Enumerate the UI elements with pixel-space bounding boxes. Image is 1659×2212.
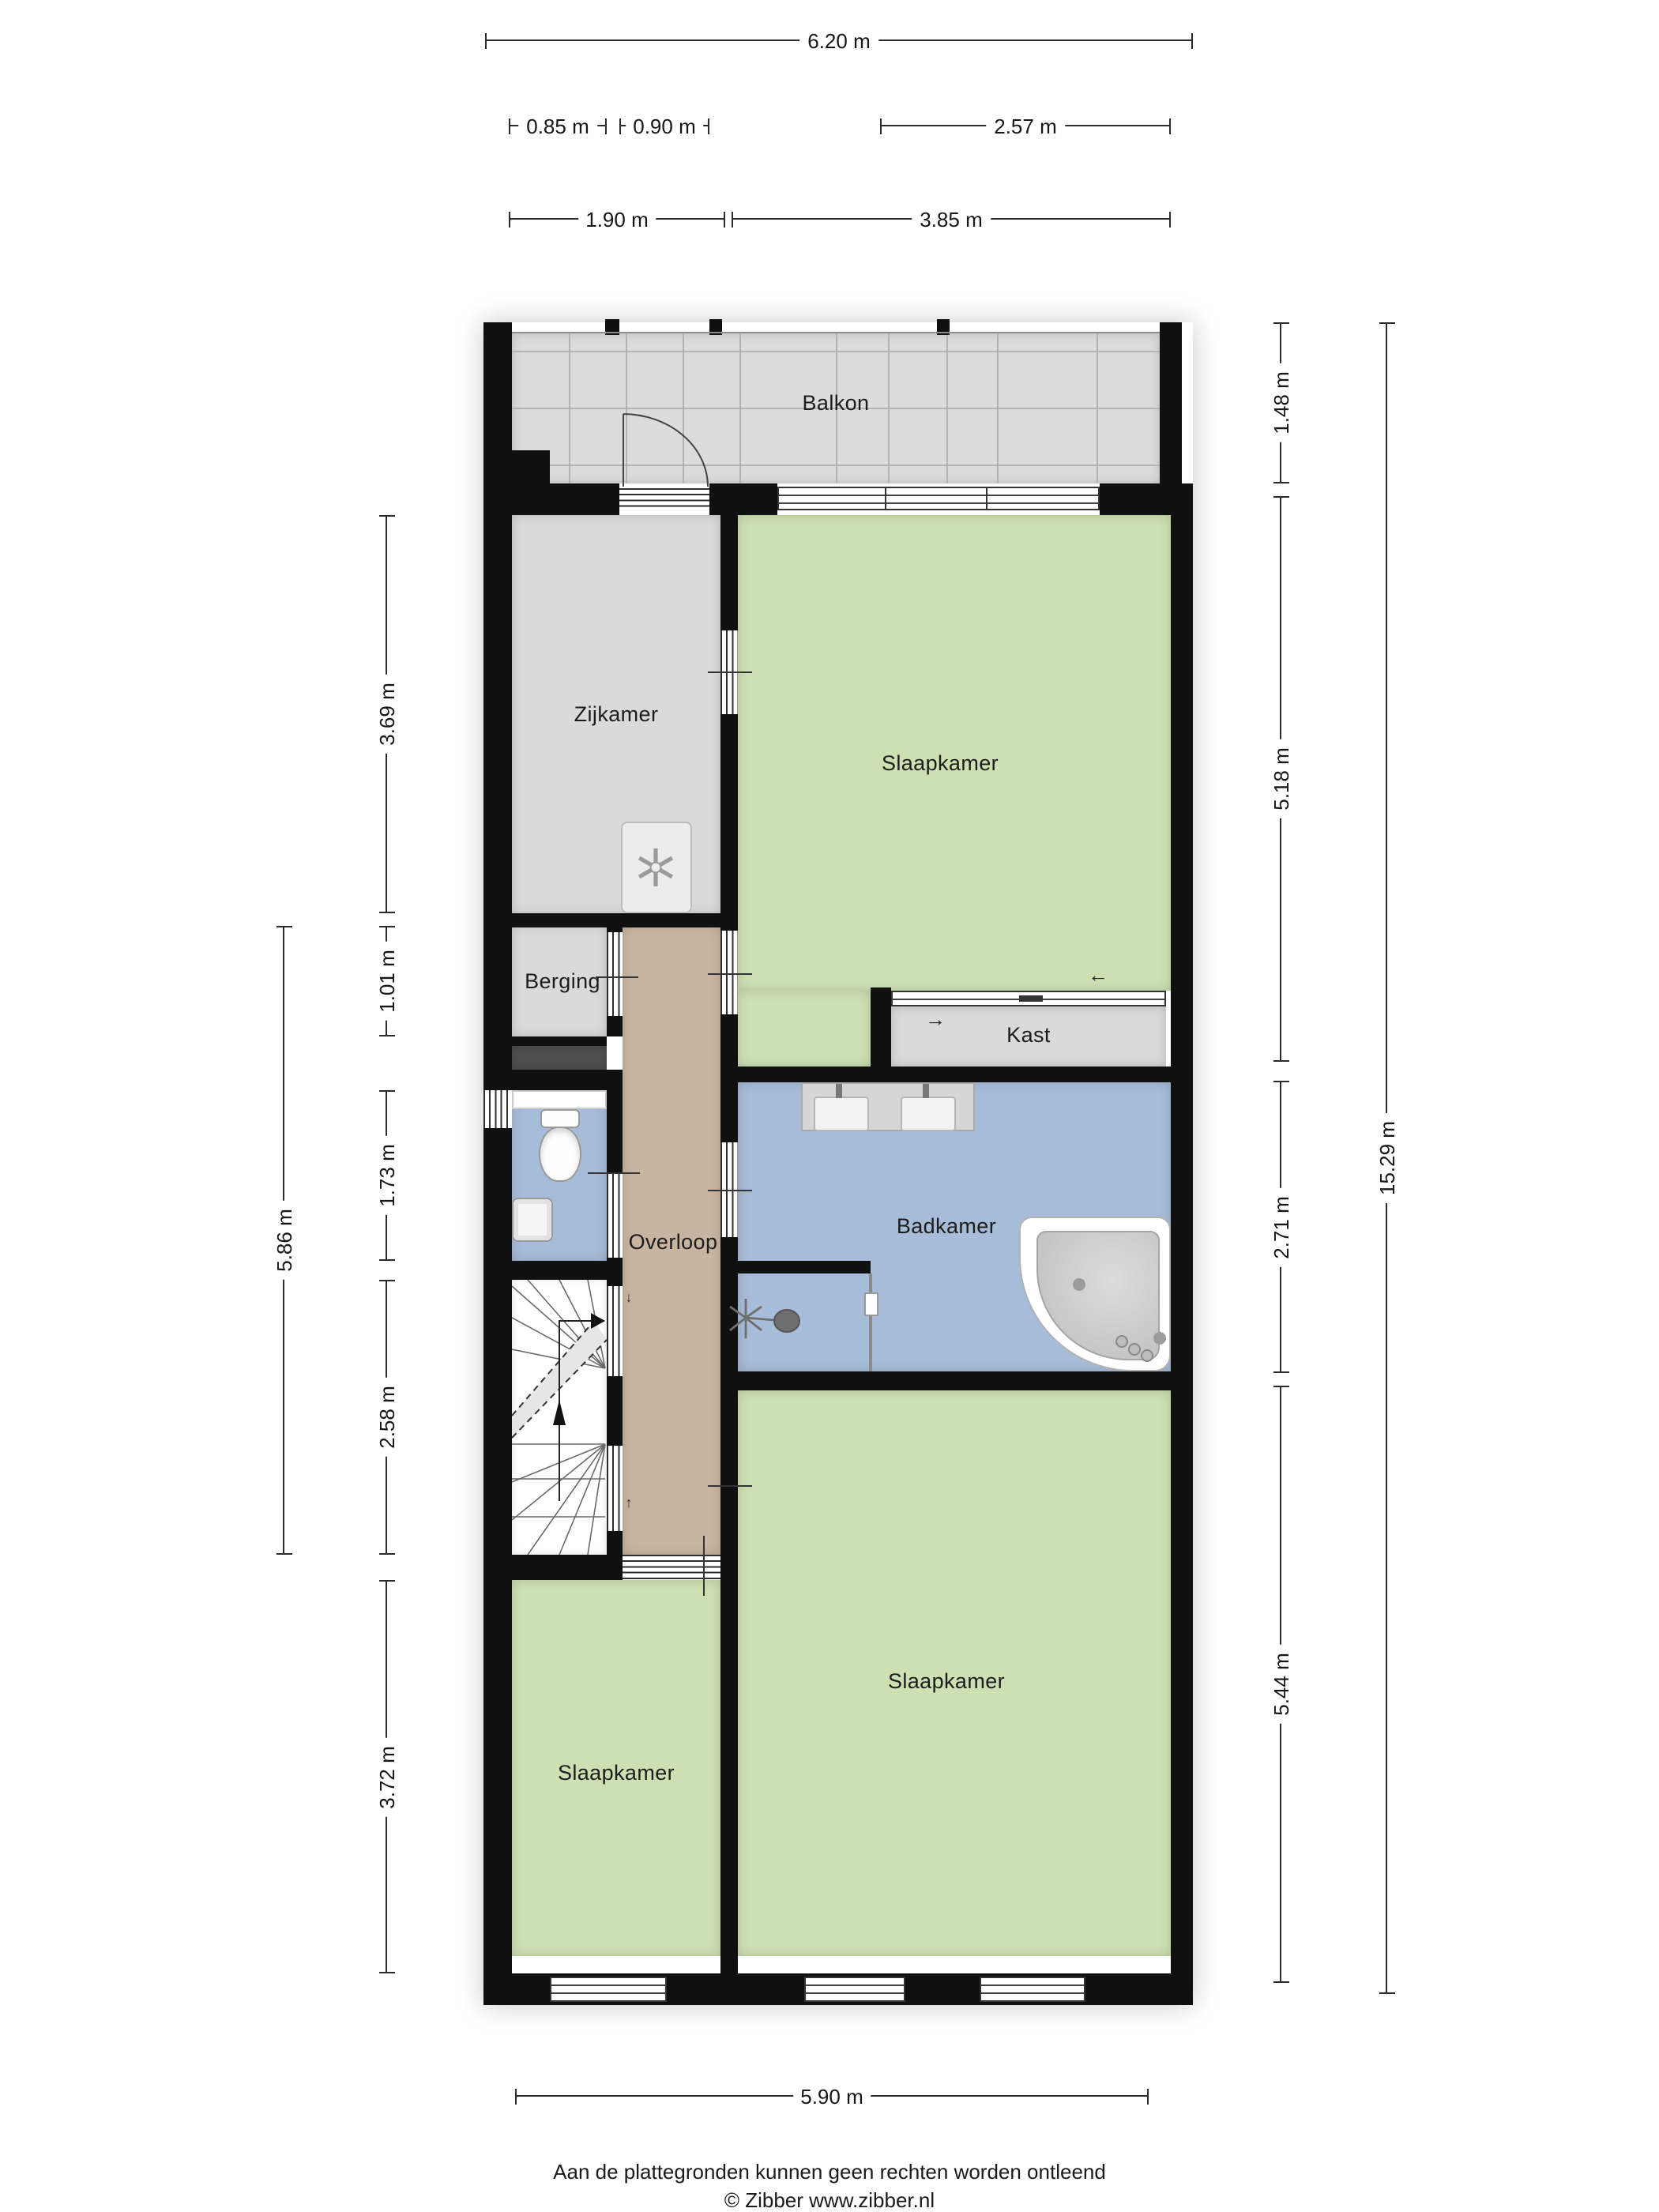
door-swing-down-icon: ↓ xyxy=(626,1289,633,1305)
dim-width-bottom: 5.90 m xyxy=(515,2095,1149,2097)
wall-segment xyxy=(1100,483,1171,515)
wall-segment xyxy=(720,1555,738,1973)
dim-label: 3.72 m xyxy=(375,1737,399,1816)
dim-label: 1.01 m xyxy=(375,942,399,1021)
kast-sliding-rail xyxy=(891,991,1166,1006)
balkon-door-sill xyxy=(619,488,709,509)
ref-tick xyxy=(708,973,752,975)
bathtub-knob xyxy=(1128,1343,1141,1356)
bathtub-knob xyxy=(1115,1335,1128,1348)
bathtub-spout xyxy=(1153,1332,1166,1345)
dim-seg-257: 2.57 m xyxy=(880,125,1171,126)
stairs xyxy=(512,1280,607,1555)
dim-label: 0.90 m xyxy=(625,115,704,138)
tile-grid-line xyxy=(946,333,948,483)
dim-left-258: 2.58 m xyxy=(386,1280,387,1555)
dim-seg-085: 0.85 m xyxy=(509,125,607,126)
shower-fixture xyxy=(724,1289,806,1352)
wall-segment xyxy=(607,1090,623,1172)
bathtub-knob xyxy=(1141,1349,1153,1362)
tile-grid-line xyxy=(1097,333,1098,483)
ref-tick xyxy=(703,1536,705,1596)
slide-arrow-left-icon: ← xyxy=(1088,963,1108,987)
dim-label: 3.69 m xyxy=(375,675,399,754)
dim-seg-190: 1.90 m xyxy=(509,218,725,220)
dim-label: 5.44 m xyxy=(1270,1645,1293,1724)
dim-left-372: 3.72 m xyxy=(386,1580,387,1973)
dim-label: 1.48 m xyxy=(1270,363,1293,442)
stairs-door-lower xyxy=(607,1446,623,1531)
kast-door-overlap xyxy=(1019,995,1043,1002)
ref-tick xyxy=(708,1485,752,1487)
room-label-balkon: Balkon xyxy=(803,391,870,415)
dim-seg-090: 0.90 m xyxy=(619,125,709,126)
dim-label: 2.71 m xyxy=(1270,1187,1293,1266)
footer-disclaimer: Aan de plattegronden kunnen geen rechten… xyxy=(0,2160,1659,2184)
bottom-window xyxy=(804,1977,905,2002)
wall-segment xyxy=(607,1376,623,1446)
dim-height-total: 15.29 m xyxy=(1386,322,1387,1994)
dim-label: 3.85 m xyxy=(912,208,991,231)
dim-label: 5.18 m xyxy=(1270,739,1293,818)
duct-strip xyxy=(512,1046,607,1070)
kast-interior-window xyxy=(720,931,738,1014)
wall-segment xyxy=(512,1036,607,1046)
bottom-window xyxy=(980,1977,1085,2002)
dim-label: 1.90 m xyxy=(577,208,656,231)
room-label-badkamer: Badkamer xyxy=(897,1214,996,1238)
floorplan-canvas: Balkon Zijkamer Slaapkamer Berging Kast … xyxy=(0,0,1659,2212)
sill-band xyxy=(738,1956,1171,1973)
wall-segment xyxy=(512,450,550,483)
toilet-fixture-tank xyxy=(540,1109,580,1128)
toilet-shelf xyxy=(512,1090,607,1109)
ref-tick xyxy=(588,1172,640,1174)
bathtub-drain xyxy=(1073,1278,1085,1291)
room-label-berging: Berging xyxy=(525,969,600,993)
dim-left-101: 1.01 m xyxy=(386,926,387,1036)
room-label-overloop: Overloop xyxy=(629,1230,718,1254)
footer-copyright: © Zibber www.zibber.nl xyxy=(0,2188,1659,2212)
dim-seg-385: 3.85 m xyxy=(732,218,1171,220)
wall-segment xyxy=(1160,322,1182,483)
sink-basin xyxy=(901,1097,956,1131)
wall-segment xyxy=(483,322,512,1087)
slaapkamer-top-floor-ext xyxy=(738,991,871,1066)
double-sink-counter xyxy=(801,1082,975,1131)
wall-segment xyxy=(483,1070,623,1090)
overloop-threshold xyxy=(623,1555,720,1580)
bottom-window xyxy=(550,1977,667,2002)
ref-tick xyxy=(708,1190,752,1191)
door-swing-up-icon: ↑ xyxy=(626,1495,633,1510)
berging-door xyxy=(607,932,623,1016)
room-label-zijkamer: Zijkamer xyxy=(574,702,659,726)
toilet-fixture-bowl xyxy=(539,1127,581,1182)
sink-tap xyxy=(923,1084,929,1098)
tile-grid-line xyxy=(997,333,999,483)
wall-segment xyxy=(709,483,777,515)
wall-segment xyxy=(607,1016,623,1036)
tile-grid-line xyxy=(569,333,570,483)
shower-glass xyxy=(869,1273,872,1371)
dim-right-544: 5.44 m xyxy=(1280,1386,1281,1983)
dim-label: 2.58 m xyxy=(375,1378,399,1457)
room-label-kast: Kast xyxy=(1006,1023,1051,1047)
ref-tick xyxy=(708,671,752,673)
wall-segment xyxy=(871,987,891,1066)
shower-partition-wall xyxy=(720,1261,871,1273)
wall-segment xyxy=(1171,483,1193,2005)
wall-segment xyxy=(720,1237,738,1555)
toilet-sink xyxy=(512,1198,553,1242)
shower-glass-handle xyxy=(864,1292,878,1316)
room-label-slaapkamer-right: Slaapkamer xyxy=(888,1669,1005,1693)
wall-segment xyxy=(720,1066,1171,1082)
door-arc xyxy=(621,411,713,490)
sink-basin xyxy=(814,1097,869,1131)
dim-label: 1.73 m xyxy=(375,1136,399,1215)
wall-segment xyxy=(720,714,738,931)
toilet-window xyxy=(483,1087,512,1128)
footer-copyright-text: © Zibber www.zibber.nl xyxy=(724,2188,935,2212)
wall-segment xyxy=(607,926,623,932)
wall-segment xyxy=(720,483,738,630)
dim-left-369: 3.69 m xyxy=(386,515,387,913)
sink-tap xyxy=(836,1084,842,1098)
ref-tick xyxy=(596,976,638,978)
toilet-door xyxy=(607,1172,623,1258)
dim-width-total: 6.20 m xyxy=(485,39,1193,41)
tile-grid-line xyxy=(739,333,741,483)
dim-label: 5.86 m xyxy=(273,1201,296,1280)
dim-left-173: 1.73 m xyxy=(386,1090,387,1261)
dim-label: 6.20 m xyxy=(799,29,878,53)
railing-pier xyxy=(483,322,512,360)
slaapkamer-window xyxy=(777,487,1100,510)
wall-segment xyxy=(483,1261,623,1280)
dim-label: 0.85 m xyxy=(518,115,597,138)
room-label-slaapkamer-left: Slaapkamer xyxy=(558,1761,675,1785)
dim-label: 15.29 m xyxy=(1375,1113,1399,1203)
wall-segment xyxy=(720,1371,1171,1390)
chimney-fan-icon xyxy=(634,845,678,890)
wall-segment xyxy=(483,1555,623,1580)
railing-line xyxy=(512,332,1160,333)
room-label-slaapkamer-top: Slaapkamer xyxy=(882,751,999,775)
dim-left-586: 5.86 m xyxy=(283,926,284,1555)
bathtub-inner xyxy=(1036,1231,1160,1360)
dim-label: 5.90 m xyxy=(792,2085,871,2109)
dim-right-518: 5.18 m xyxy=(1280,496,1281,1062)
sill-band xyxy=(512,1956,720,1973)
tile-grid-line xyxy=(888,333,890,483)
stairs-door-upper xyxy=(607,1286,623,1376)
slide-arrow-right-icon: → xyxy=(925,1007,946,1031)
dim-label: 2.57 m xyxy=(986,115,1065,138)
dim-right-148: 1.48 m xyxy=(1280,322,1281,483)
footer-disclaimer-text: Aan de plattegronden kunnen geen rechten… xyxy=(553,2160,1106,2184)
dim-right-271: 2.71 m xyxy=(1280,1081,1281,1373)
wall-segment xyxy=(483,483,619,515)
